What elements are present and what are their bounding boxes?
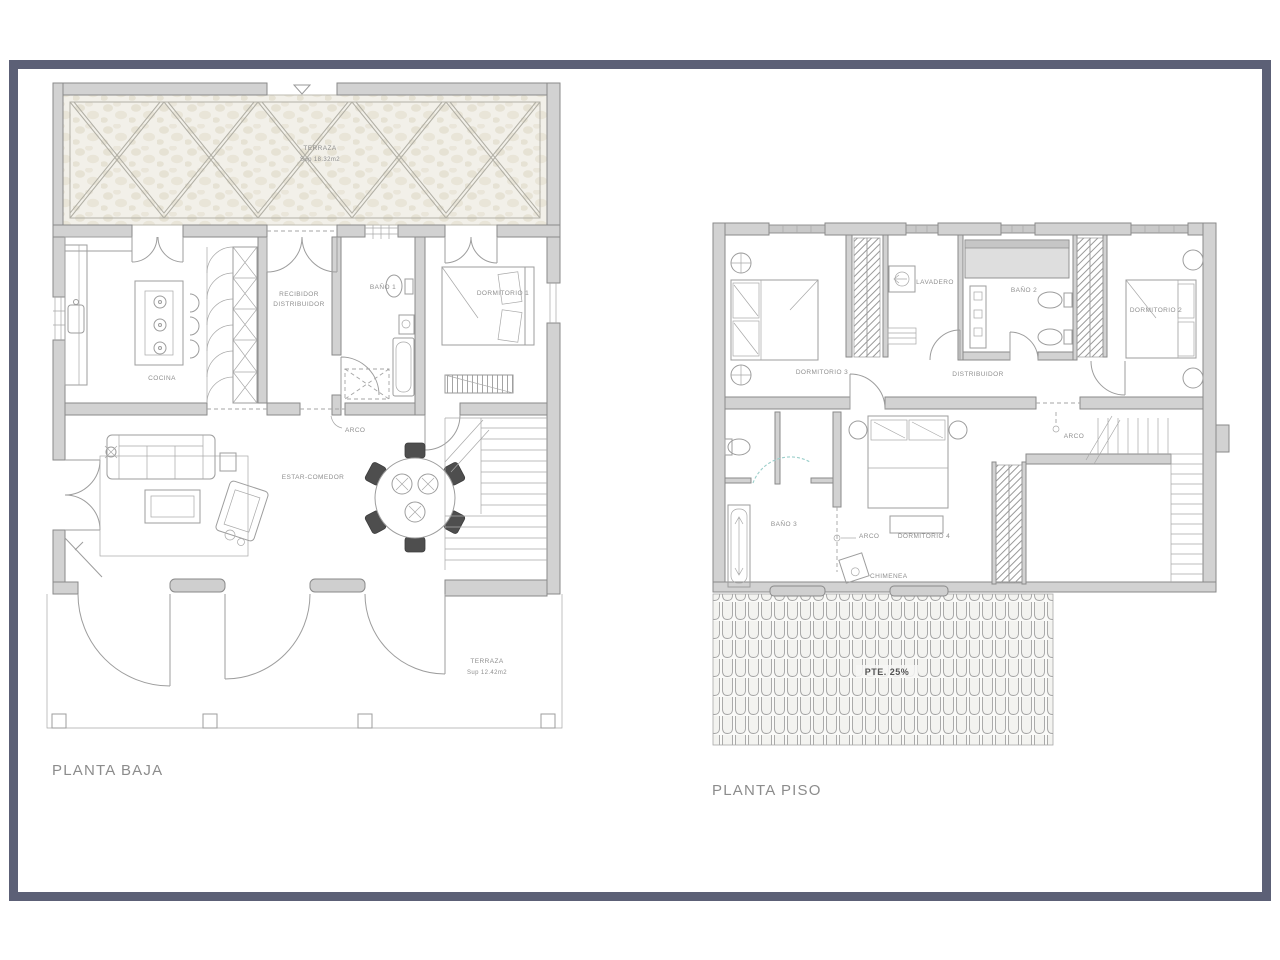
bedroom1-furniture [442, 267, 534, 393]
label-pendiente: PTE. 25% [865, 667, 910, 677]
label-estar-comedor: ESTAR-COMEDOR [282, 474, 345, 481]
label-arco-dorm4: ARCO [859, 533, 879, 540]
label-bano1: BAÑO 1 [370, 282, 396, 291]
label-terraza-top-area: Sup 18.32m2 [300, 157, 340, 163]
label-bano2: BAÑO 2 [1011, 285, 1037, 294]
label-distribuidor: DISTRIBUIDOR [952, 371, 1003, 378]
bath3-fixtures [725, 439, 750, 587]
walls-planta-piso [713, 223, 1229, 596]
label-recibidor-1: RECIBIDOR [279, 291, 319, 298]
planta-baja-drawing: TERRAZA Sup 18.32m2 COCINA RECIBIDOR DIS… [45, 80, 575, 740]
laundry-fixtures [888, 266, 916, 344]
page: TERRAZA Sup 18.32m2 COCINA RECIBIDOR DIS… [0, 0, 1280, 960]
label-terraza-bottom-area: Sup 12.42m2 [467, 670, 507, 676]
label-lavadero: LAVADERO [916, 279, 954, 286]
bedroom3-furniture [731, 253, 818, 385]
label-bano3: BAÑO 3 [771, 519, 797, 528]
arco-symbols [753, 403, 1080, 572]
planta-piso-title: PLANTA PISO [712, 782, 822, 799]
planta-piso-drawing: DORMITORIO 3 LAVADERO BAÑO 2 DORMITORIO … [708, 222, 1233, 752]
living-furniture [100, 435, 269, 556]
label-terraza-top: TERRAZA [303, 145, 336, 152]
north-marker [294, 85, 310, 94]
label-dormitorio1: DORMITORIO 1 [477, 290, 529, 297]
label-chimenea: CHIMENEA [870, 573, 908, 580]
windows-planta-baja [53, 225, 556, 340]
label-dormitorio3: DORMITORIO 3 [796, 369, 848, 376]
label-dormitorio2: DORMITORIO 2 [1130, 307, 1182, 314]
label-recibidor-2: DISTRIBUIDOR [273, 301, 324, 308]
dining-set [364, 443, 466, 552]
openings-dashed [207, 231, 345, 409]
bath2-fixtures [965, 240, 1072, 348]
chimney [839, 553, 869, 583]
label-arco-baja: ARCO [345, 427, 365, 434]
label-arco-stairs: ARCO [1064, 433, 1084, 440]
bath1-fixtures [345, 275, 414, 399]
closets [854, 238, 1103, 583]
bedroom2-furniture [1126, 250, 1203, 388]
label-terraza-bottom: TERRAZA [470, 658, 503, 665]
planta-baja-title: PLANTA BAJA [52, 762, 163, 779]
label-cocina: COCINA [148, 375, 176, 382]
label-dormitorio4: DORMITORIO 4 [898, 533, 950, 540]
stairs-planta-baja [445, 418, 547, 570]
bedroom4-furniture [849, 416, 967, 533]
stairs-planta-piso [1086, 416, 1203, 582]
arco-leader [331, 416, 342, 428]
